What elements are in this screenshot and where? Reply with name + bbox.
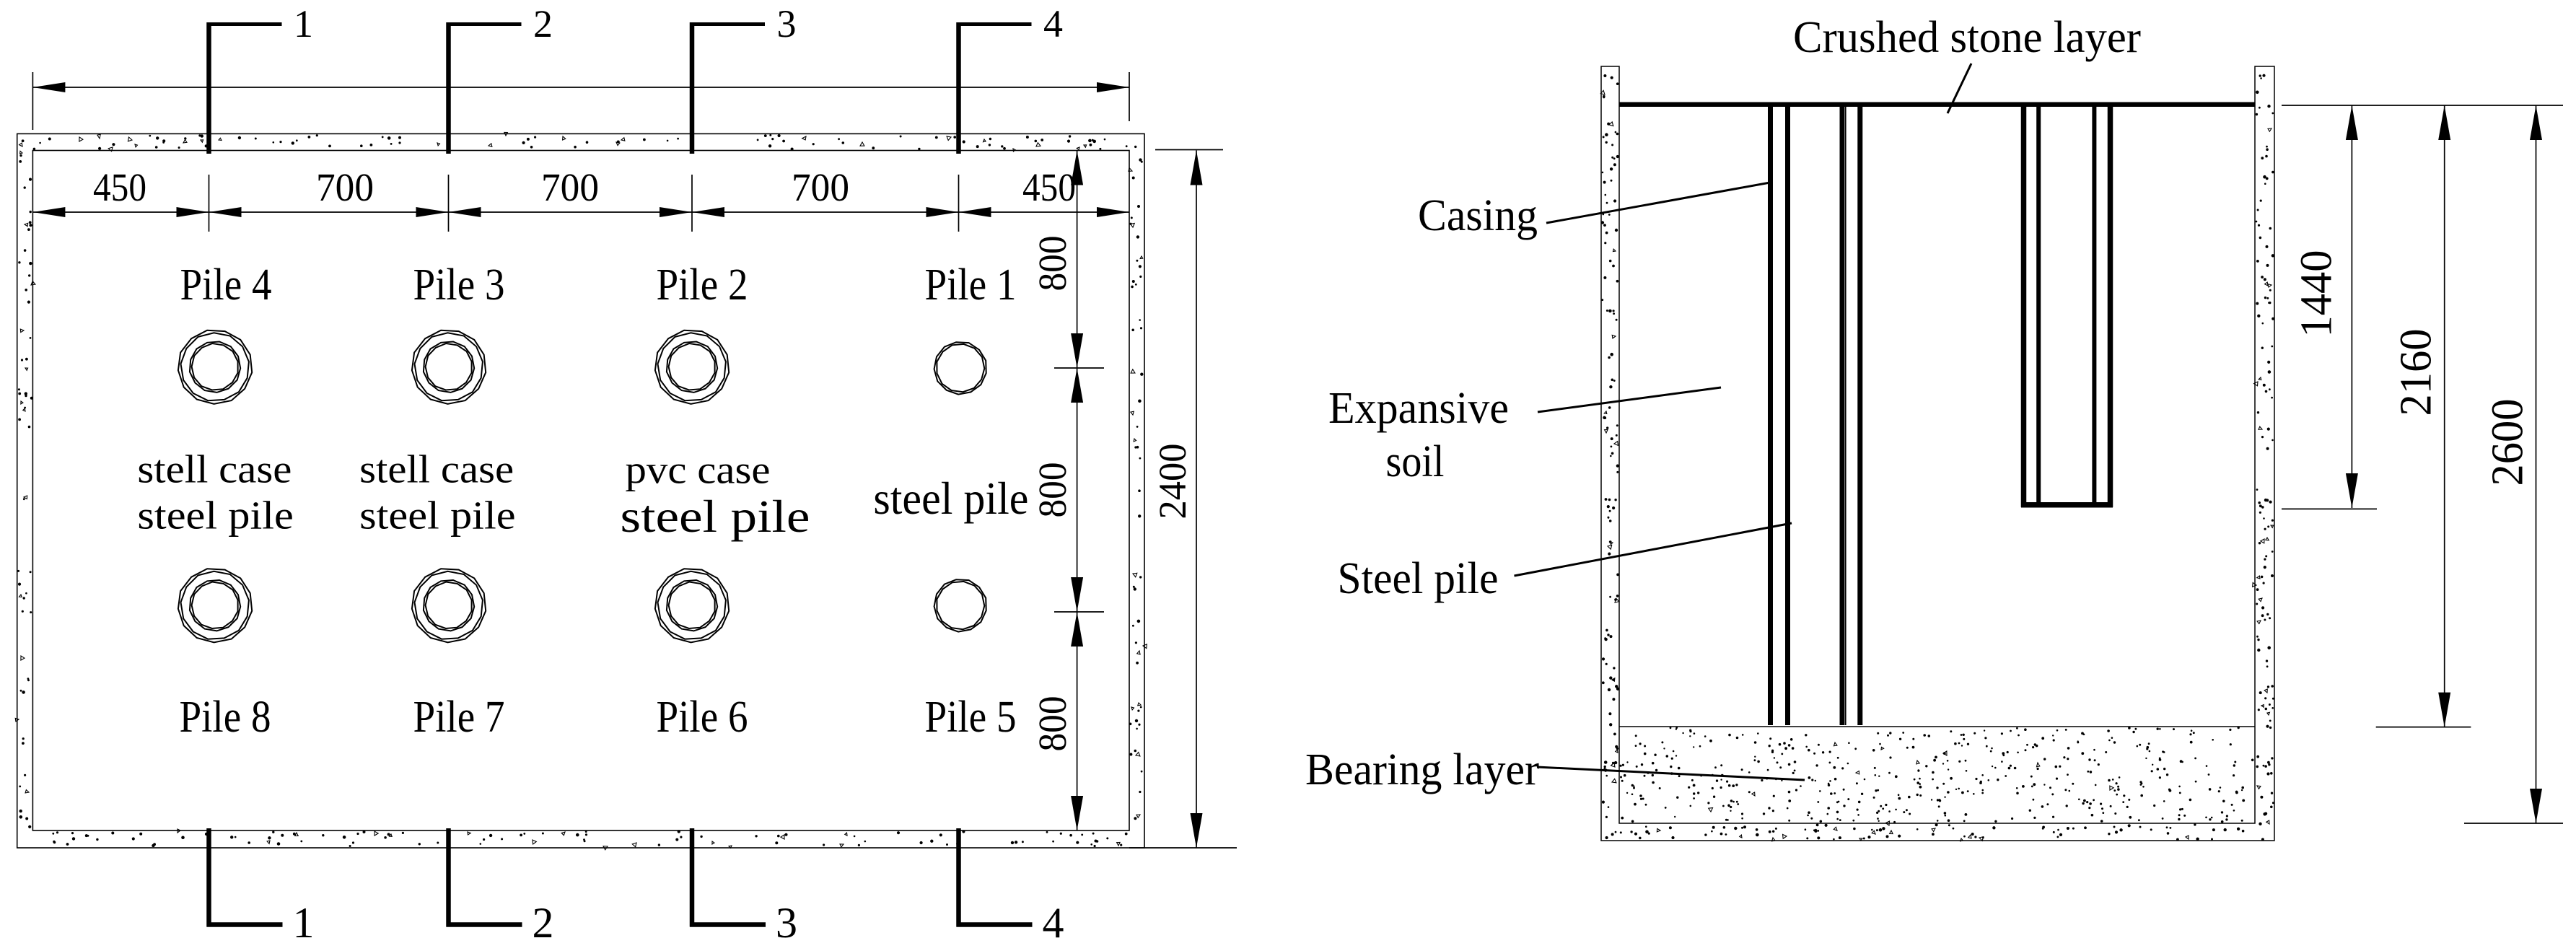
svg-text:2400: 2400: [1151, 444, 1194, 520]
svg-text:4: 4: [1043, 899, 1064, 938]
svg-text:stell case: stell case: [137, 447, 292, 491]
svg-text:1: 1: [294, 2, 313, 45]
svg-text:Casing: Casing: [1418, 191, 1538, 240]
svg-text:steel pile: steel pile: [621, 491, 810, 542]
svg-text:soil: soil: [1386, 437, 1445, 486]
svg-text:Pile 2: Pile 2: [657, 260, 748, 310]
svg-text:2600: 2600: [2484, 399, 2533, 486]
svg-text:Pile 6: Pile 6: [657, 693, 748, 742]
svg-text:Pile 4: Pile 4: [180, 260, 272, 310]
svg-text:Bearing layer: Bearing layer: [1305, 745, 1539, 794]
svg-text:Pile 5: Pile 5: [925, 693, 1017, 742]
svg-text:Pile 8: Pile 8: [180, 693, 271, 742]
svg-text:700: 700: [792, 165, 849, 209]
svg-text:4: 4: [1043, 2, 1063, 45]
svg-text:700: 700: [316, 165, 374, 209]
svg-text:Pile 7: Pile 7: [413, 693, 505, 742]
svg-text:stell case: stell case: [359, 447, 514, 491]
svg-text:steel pile: steel pile: [359, 494, 515, 538]
svg-text:Steel pile: Steel pile: [1338, 554, 1499, 603]
svg-text:3: 3: [777, 2, 797, 45]
svg-text:Expansive: Expansive: [1328, 384, 1509, 433]
svg-text:2160: 2160: [2392, 329, 2441, 416]
svg-text:Crushed stone layer: Crushed stone layer: [1793, 13, 2141, 62]
svg-text:3: 3: [776, 899, 797, 938]
svg-text:450: 450: [93, 165, 146, 209]
svg-text:pvc case: pvc case: [626, 447, 771, 491]
svg-text:2: 2: [533, 899, 554, 938]
svg-text:800: 800: [1030, 463, 1074, 518]
svg-text:800: 800: [1030, 696, 1074, 752]
svg-text:1440: 1440: [2292, 250, 2341, 338]
svg-text:800: 800: [1030, 236, 1074, 292]
svg-text:Pile 1: Pile 1: [925, 260, 1017, 310]
svg-text:450: 450: [1022, 165, 1076, 209]
svg-text:1: 1: [293, 899, 315, 938]
svg-text:700: 700: [541, 165, 599, 209]
svg-text:Pile 3: Pile 3: [413, 260, 505, 310]
svg-text:steel pile: steel pile: [873, 473, 1028, 524]
svg-text:steel pile: steel pile: [137, 494, 294, 538]
svg-text:2: 2: [533, 2, 553, 45]
